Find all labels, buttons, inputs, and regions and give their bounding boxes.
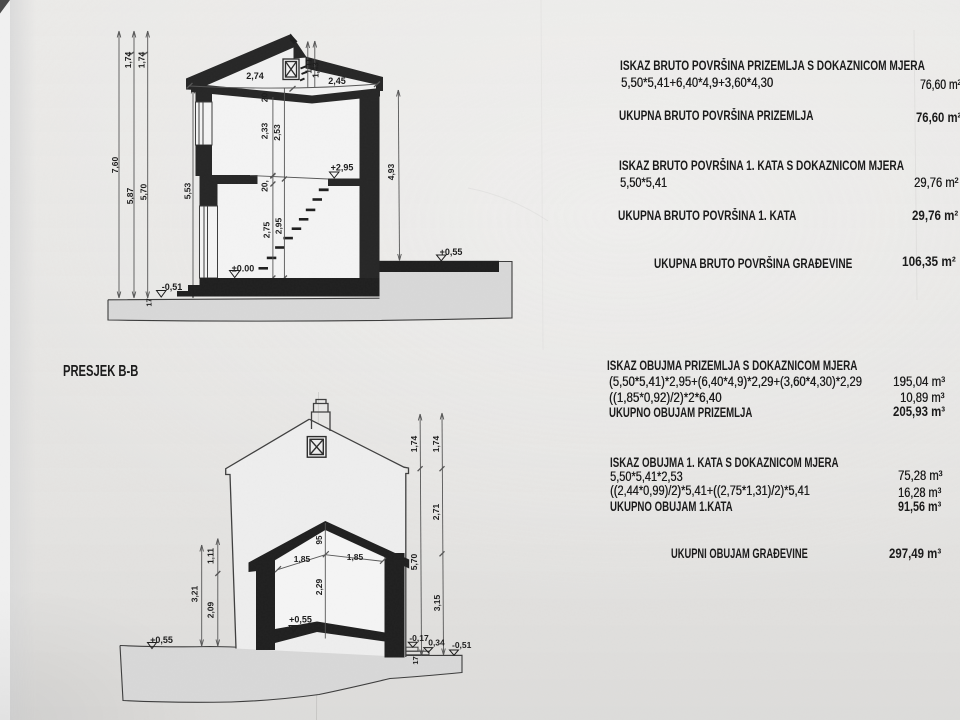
- svg-text:4,93: 4,93: [386, 163, 396, 180]
- svg-text:5,70: 5,70: [139, 183, 149, 200]
- svg-text:+2,95: +2,95: [331, 163, 354, 173]
- svg-text:1,74: 1,74: [123, 51, 133, 68]
- svg-text:17: 17: [145, 298, 154, 306]
- svg-text:1,85: 1,85: [294, 554, 311, 564]
- svg-text:1,11: 1,11: [206, 548, 216, 564]
- svg-text:2,71: 2,71: [431, 503, 441, 520]
- svg-text:5,87: 5,87: [125, 187, 135, 204]
- svg-text:20: 20: [260, 93, 270, 103]
- svg-text:-0,51: -0,51: [452, 640, 472, 650]
- svg-text:1,43: 1,43: [311, 62, 320, 78]
- svg-text:17: 17: [411, 656, 420, 664]
- svg-text:1,74: 1,74: [431, 435, 441, 452]
- svg-text:+0,55: +0,55: [150, 635, 173, 645]
- svg-text:5,70: 5,70: [409, 553, 419, 570]
- svg-text:2,95: 2,95: [274, 217, 284, 234]
- svg-text:2,53: 2,53: [272, 124, 282, 141]
- svg-text:5,53: 5,53: [183, 182, 193, 199]
- svg-text:±0.00: ±0.00: [232, 264, 254, 274]
- svg-text:2,74: 2,74: [246, 71, 264, 81]
- svg-text:3,15: 3,15: [432, 594, 442, 611]
- svg-text:2,33: 2,33: [260, 122, 270, 139]
- svg-text:95: 95: [315, 535, 324, 544]
- svg-text:3,21: 3,21: [190, 585, 200, 602]
- svg-text:1,74: 1,74: [137, 51, 147, 68]
- svg-text:2,45: 2,45: [328, 76, 346, 86]
- svg-text:0,34: 0,34: [428, 638, 445, 648]
- svg-text:20,: 20,: [260, 180, 270, 192]
- svg-text:1,74: 1,74: [409, 435, 419, 452]
- svg-text:7,60: 7,60: [110, 156, 120, 173]
- svg-text:+0,55: +0,55: [289, 615, 312, 625]
- svg-text:-0,17: -0,17: [409, 633, 429, 643]
- svg-text:1,85: 1,85: [347, 552, 364, 562]
- svg-text:2,29: 2,29: [314, 578, 324, 595]
- svg-text:2,75: 2,75: [262, 221, 272, 238]
- svg-text:2,09: 2,09: [206, 601, 216, 618]
